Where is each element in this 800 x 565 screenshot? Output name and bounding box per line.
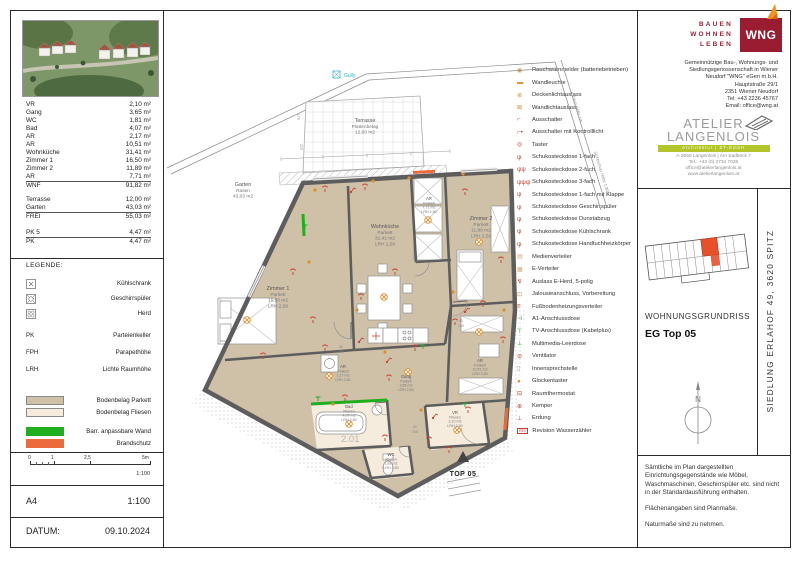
area-row: Bad4,07 m² — [26, 125, 151, 133]
legend-abbrev: PKParteienkeller — [26, 327, 151, 344]
drawing-type: WOHNUNGSGRUNDRISS — [645, 312, 750, 321]
wng-logo: WNG — [740, 18, 782, 52]
project-title: SIEDLUNG ERLAHOF 49, 3620 SPITZ — [766, 171, 780, 471]
unit-title: EG Top 05 — [645, 328, 696, 340]
room-label-terrasse: TerrassePlattenbelag12,00 m2 — [352, 118, 379, 136]
date-row: DATUM: 09.10.2024 — [10, 517, 163, 546]
legend-abbrev: LRHLichte Raumhöhe — [26, 361, 151, 378]
dim-text: 170 — [296, 114, 301, 120]
legend-item: Geschirrspüler — [26, 291, 151, 306]
area-row: Wohnküche31,41 m² — [26, 149, 151, 157]
room-label-zimmer2: Zimmer 2Parkett11,89 m2LRH 2,50 — [470, 216, 493, 239]
area-row: Terrasse12,00 m² — [26, 196, 151, 204]
area-row-total: FREI55,03 m² — [26, 213, 151, 221]
notes: Sämtliche im Plan dargestellten Einricht… — [645, 464, 783, 538]
gully-label: Gully — [344, 73, 356, 79]
legend-swatch: Brandschutz — [26, 437, 151, 449]
fire-protection-swatch — [26, 439, 64, 448]
area-table: VR2,10 m² Gang3,65 m² WC1,81 m² Bad4,07 … — [26, 101, 151, 246]
fridge-icon — [26, 279, 36, 289]
drawing-scale: 1:100 — [127, 485, 150, 517]
note-paragraph: Sämtliche im Plan dargestellten Einricht… — [645, 464, 783, 497]
room-label-garten: GartenRasen43,03 m2 — [233, 182, 253, 200]
svg-text:80: 80 — [339, 345, 343, 349]
privacy-screen-label: Sichtschutz Höhe 1,80m — [593, 151, 611, 196]
room-label-zimmer1: Zimmer 1Parkett16,50 m2LRH 2,50 — [267, 286, 290, 309]
svg-text:80: 80 — [459, 319, 463, 323]
format-row: A4 1:100 — [10, 485, 163, 517]
fire-protection-wall — [413, 171, 435, 172]
key-plan — [641, 230, 753, 292]
area-row: VR2,10 m² — [26, 101, 151, 109]
area-row: AR7,71 m² — [26, 173, 151, 182]
highlighted-unit — [701, 237, 719, 256]
parkett-swatch — [26, 396, 64, 405]
accessible-wall-swatch — [26, 427, 64, 436]
area-row-total: WNF91,82 m² — [26, 182, 151, 190]
dim-text: 210 — [299, 144, 304, 150]
atelier-brand: ATELIER LANGENLOIS Architektur | ZT-GmbH… — [637, 118, 790, 178]
note-paragraph: Naturmaße sind zu nehmen. — [645, 521, 783, 529]
level-mark: 2.01 — [341, 434, 360, 445]
svg-text:200: 200 — [458, 324, 464, 328]
north-label: N — [695, 395, 701, 404]
divider — [757, 188, 758, 455]
legend-swatch: Bodenbelag Fliesen — [26, 406, 151, 418]
wng-tagline: BAUENWOHNENLEBEN — [690, 20, 733, 50]
divider — [10, 258, 163, 259]
area-row: Garten43,03 m² — [26, 204, 151, 213]
north-compass: N — [672, 378, 724, 450]
paper-format: A4 — [26, 485, 37, 517]
project-photo — [22, 20, 159, 97]
fire-protection-wall — [505, 408, 507, 430]
svg-text:200: 200 — [338, 350, 344, 354]
room-label-wohnkueche: WohnkücheParkett31,41 m2LRH 2,50 — [371, 224, 399, 247]
fliesen-swatch — [26, 408, 64, 417]
area-row: AR10,51 m² — [26, 141, 151, 149]
flame-icon — [764, 4, 780, 20]
area-row: Zimmer 116,50 m² — [26, 157, 151, 165]
dishwasher-icon — [26, 294, 36, 304]
legend-title: LEGENDE: — [26, 262, 63, 269]
svg-text:200: 200 — [412, 430, 418, 434]
terrace: TerrassePlattenbelag12,00 m2 — [301, 94, 425, 176]
date-label: DATUM: — [26, 517, 60, 546]
area-row: PK 54,47 m² — [26, 229, 151, 238]
scale-bar: 0 1 2,5 5m 1:100 — [10, 452, 163, 485]
stove-icon — [26, 309, 36, 319]
note-paragraph: Flächenangaben sind Planmaße. — [645, 505, 783, 513]
wng-address: Gemeinnützige Bau-, Wohnungs- undSiedlun… — [637, 60, 778, 110]
legend-item: Herd — [26, 306, 151, 321]
scale-ratio: 1:100 — [136, 471, 150, 477]
plan-sheet: VR2,10 m² Gang3,65 m² WC1,81 m² Bad4,07 … — [0, 0, 800, 565]
svg-text:80: 80 — [413, 425, 417, 429]
legend-item: Kühlschrank — [26, 276, 151, 291]
legend-abbrev: FPHParapethöhe — [26, 344, 151, 361]
area-row: WC1,81 m² — [26, 117, 151, 125]
area-row: Gang3,65 m² — [26, 109, 151, 117]
gully-marker: Gully — [333, 71, 356, 79]
floor-plan: Zaun Höhe 1m Sichtschutz Höhe 1,80m Gull… — [163, 10, 637, 546]
roof-icon — [744, 114, 774, 130]
area-row: Zimmer 211,89 m² — [26, 165, 151, 173]
date-value: 09.10.2024 — [105, 517, 150, 546]
area-row: AR2,17 m² — [26, 133, 151, 141]
atelier-bar: Architektur | ZT-GmbH — [658, 145, 770, 152]
legend-swatch: Barr. anpassbare Wand — [26, 425, 151, 437]
wng-brand: BAUENWOHNENLEBEN WNG — [637, 18, 782, 52]
legend-swatch: Bodenbelag Parkett — [26, 394, 151, 406]
legend: Kühlschrank Geschirrspüler Herd PKPartei… — [26, 276, 151, 449]
area-row: PK4,47 m² — [26, 238, 151, 246]
